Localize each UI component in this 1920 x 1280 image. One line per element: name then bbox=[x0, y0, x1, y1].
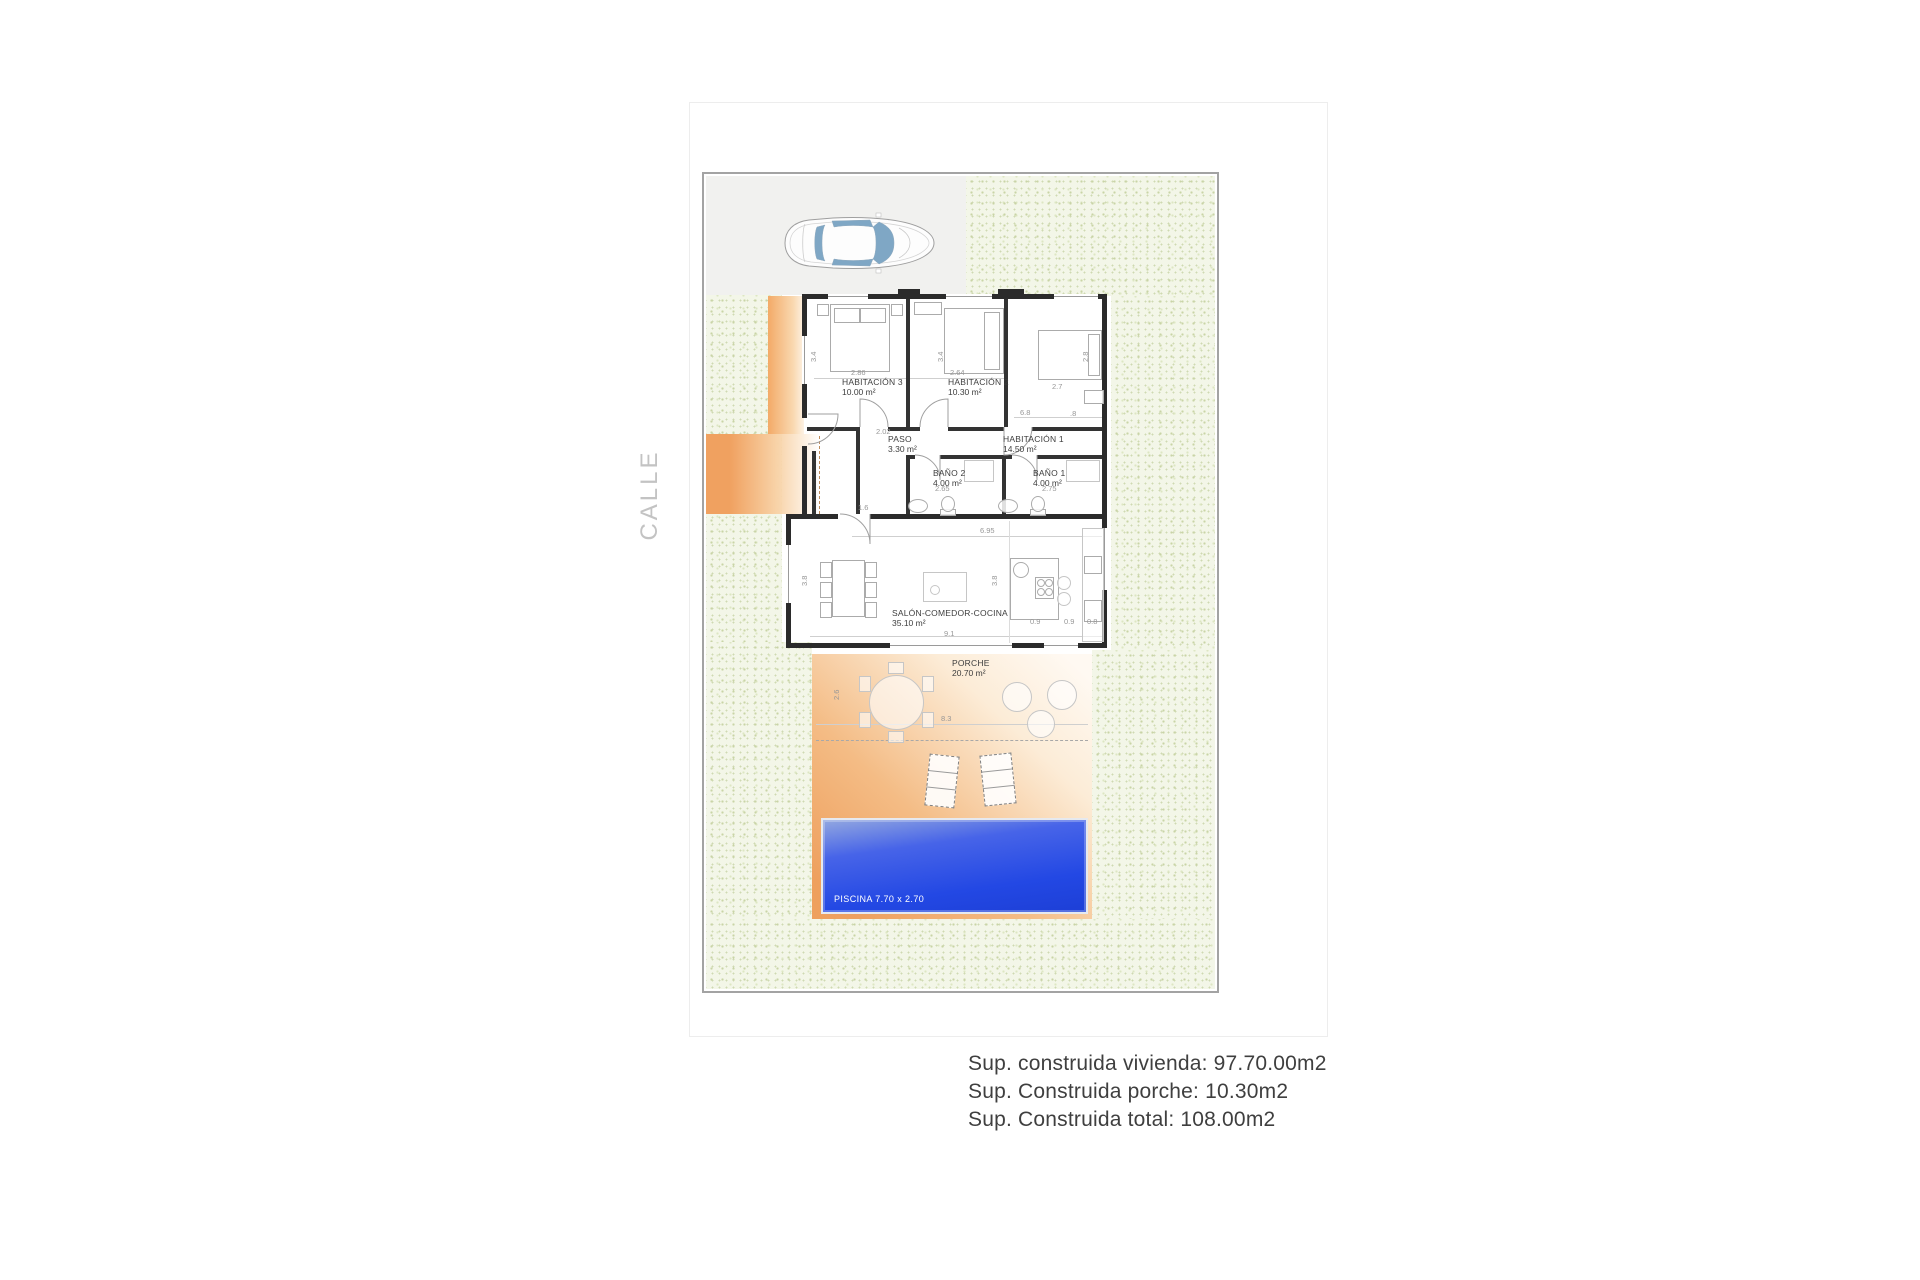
dimension-label: 2.75 bbox=[1042, 484, 1057, 493]
room-area: 10.00 m² bbox=[842, 387, 903, 397]
dimension-label: 3.8 bbox=[800, 576, 809, 586]
dimension-label: 2.6 bbox=[832, 690, 841, 700]
dimension-label: .8 bbox=[1070, 409, 1076, 418]
door-arcs-layer bbox=[0, 0, 1920, 1280]
dimension-label: 2.8 bbox=[1081, 352, 1090, 362]
room-name: HABITACIÓN 2 bbox=[948, 377, 1009, 387]
room-area: 3.30 m² bbox=[888, 444, 917, 454]
door-arc bbox=[920, 399, 948, 427]
floor-plan-page: CALLE bbox=[0, 0, 1920, 1280]
dimension-label: 2.64 bbox=[950, 368, 965, 377]
dimension-label: 0.9 bbox=[1030, 617, 1040, 626]
room-area: 20.70 m² bbox=[952, 668, 990, 678]
dimension-label: 6.8 bbox=[1020, 408, 1030, 417]
dimension-label: 3.4 bbox=[809, 352, 818, 362]
room-area: 14.50 m² bbox=[1003, 444, 1064, 454]
door-arc bbox=[808, 414, 838, 444]
door-arc bbox=[860, 399, 888, 427]
room-area: 10.30 m² bbox=[948, 387, 1009, 397]
dimension-label: 9.1 bbox=[944, 629, 954, 638]
dimension-label: 0.9 bbox=[1064, 617, 1074, 626]
dimension-label: 0.8 bbox=[1087, 617, 1097, 626]
door-arc bbox=[840, 514, 870, 544]
room-label: PORCHE20.70 m² bbox=[952, 658, 990, 678]
room-name: PASO bbox=[888, 434, 917, 444]
dimension-label: 3.8 bbox=[990, 576, 999, 586]
dimension-label: 2.7 bbox=[1052, 382, 1062, 391]
room-name: BAÑO 1 bbox=[1033, 468, 1065, 478]
dimension-label: 1.6 bbox=[858, 503, 868, 512]
dimension-label: 2.02 bbox=[876, 427, 891, 436]
dimension-label: 2.65 bbox=[935, 484, 950, 493]
dimension-label: 2.86 bbox=[851, 368, 866, 377]
room-area: 35.10 m² bbox=[892, 618, 1008, 628]
room-name: SALÓN-COMEDOR-COCINA bbox=[892, 608, 1008, 618]
room-name: PORCHE bbox=[952, 658, 990, 668]
summary-line: Sup. Construida porche: 10.30m2 bbox=[968, 1078, 1327, 1106]
summary-line: Sup. Construida total: 108.00m2 bbox=[968, 1106, 1327, 1134]
room-label: SALÓN-COMEDOR-COCINA35.10 m² bbox=[892, 608, 1008, 628]
room-label: HABITACIÓN 114.50 m² bbox=[1003, 434, 1064, 454]
room-label: PASO3.30 m² bbox=[888, 434, 917, 454]
room-label: HABITACIÓN 310.00 m² bbox=[842, 377, 903, 397]
room-name: HABITACIÓN 3 bbox=[842, 377, 903, 387]
dimension-label: 3.4 bbox=[936, 352, 945, 362]
dimension-label: 8.3 bbox=[941, 714, 951, 723]
room-label: HABITACIÓN 210.30 m² bbox=[948, 377, 1009, 397]
dimension-label: 6.95 bbox=[980, 526, 995, 535]
summary-line: Sup. construida vivienda: 97.70.00m2 bbox=[968, 1050, 1327, 1078]
room-name: BAÑO 2 bbox=[933, 468, 965, 478]
room-name: HABITACIÓN 1 bbox=[1003, 434, 1064, 444]
area-summary: Sup. construida vivienda: 97.70.00m2 Sup… bbox=[968, 1050, 1327, 1134]
